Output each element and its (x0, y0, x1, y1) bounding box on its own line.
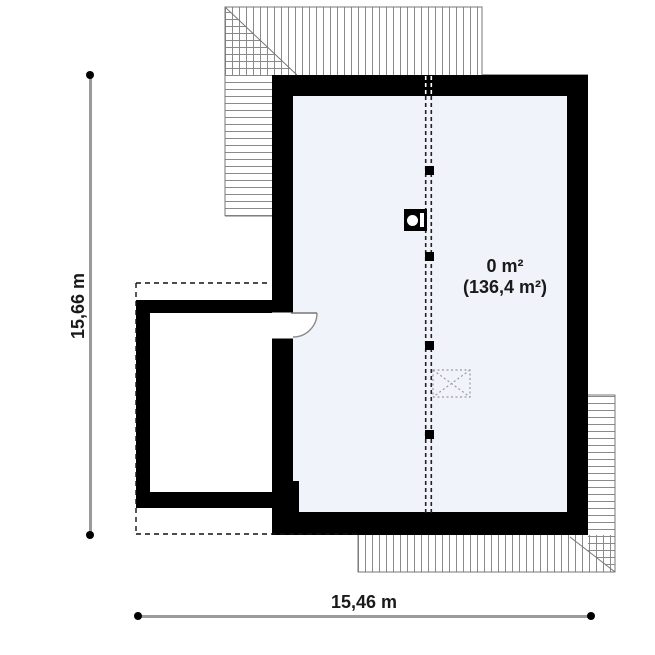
chimney-flue-icon (407, 215, 418, 226)
chimney-symbol (404, 209, 427, 231)
room-area-line2: (136,4 m²) (405, 277, 605, 298)
main-room-floor (293, 96, 567, 512)
dimension-dot-top (86, 71, 94, 79)
roof-post-marker-4 (425, 430, 434, 439)
wall-step (293, 481, 299, 512)
dimension-dot-bottom (86, 531, 94, 539)
roof-post-marker-3 (425, 341, 434, 350)
room-area-label: 0 m² (136,4 m²) (405, 256, 605, 298)
side-room-floor (150, 313, 272, 492)
roof-hatch-bottom-right (588, 395, 615, 572)
dimension-line-vertical (89, 75, 92, 535)
chimney-vent-icon (420, 213, 424, 227)
dimension-dot-left (134, 612, 142, 620)
dimension-dot-right (587, 612, 595, 620)
dimension-label-vertical: 15,66 m (68, 241, 88, 371)
roof-hatch-bottom (358, 535, 615, 572)
room-area-line1: 0 m² (405, 256, 605, 277)
dimension-label-horizontal: 15,46 m (264, 592, 464, 613)
floor-plan-canvas: 0 m² (136,4 m²) 15,66 m 15,46 m (0, 0, 655, 655)
roof-post-marker-1 (425, 166, 434, 175)
dimension-line-horizontal (138, 615, 591, 618)
